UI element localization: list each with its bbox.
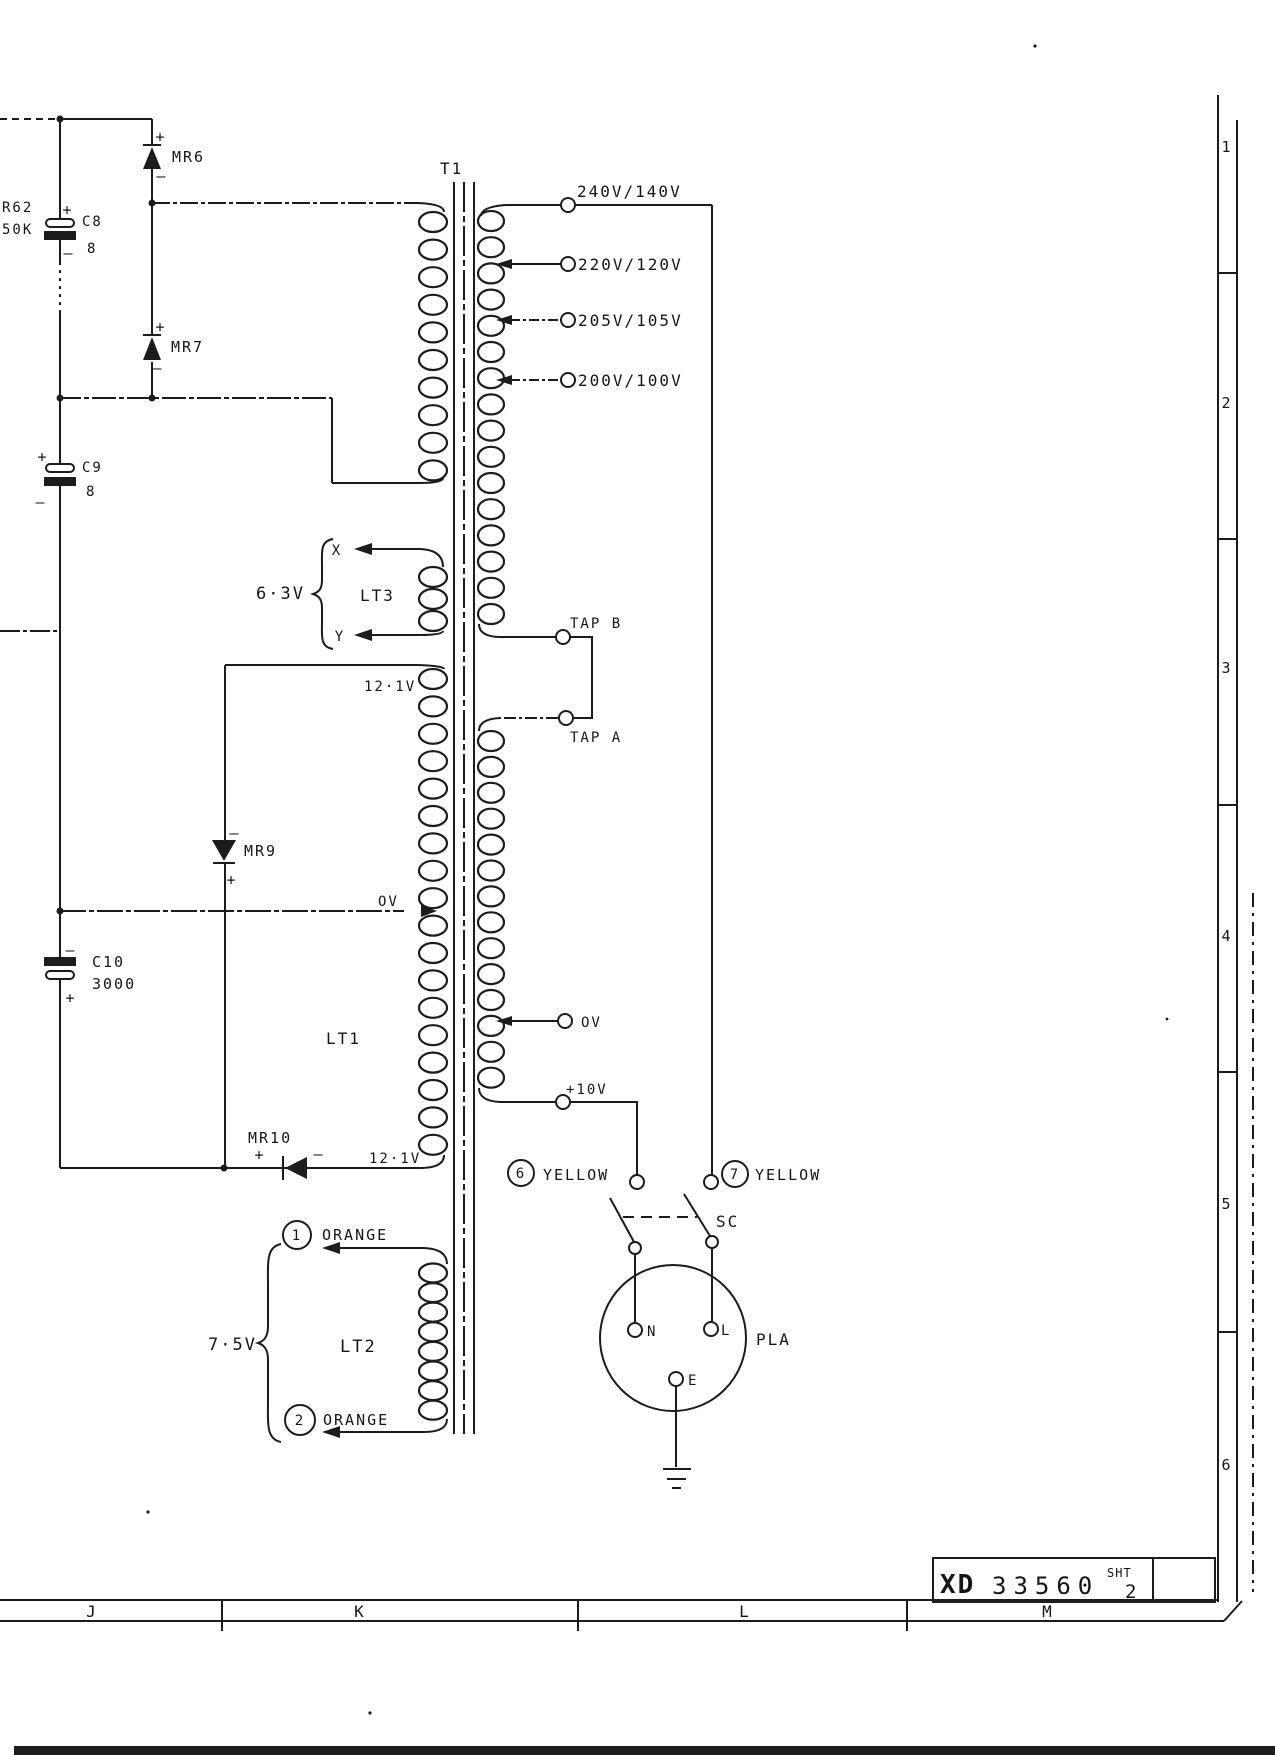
- orange-1-color: ORANGE: [322, 1226, 388, 1244]
- c10-value: 3000: [92, 975, 136, 993]
- orange-2-number: 2: [295, 1413, 305, 1429]
- row-number-4: 4: [1221, 927, 1232, 945]
- secondary-zero-label: OV: [581, 1015, 602, 1031]
- mr10-plus: +: [254, 1146, 263, 1164]
- c8-value: 8: [87, 241, 97, 257]
- column-letter-m: M: [1042, 1602, 1054, 1621]
- orange-1-number: 1: [292, 1228, 302, 1244]
- schematic-sheet: 1 2 3 4 5 6 J K L M XD 33560 SHT 2 T1: [0, 0, 1275, 1755]
- frame-grid-labels: 1 2 3 4 5 6 J K L M: [86, 138, 1232, 1621]
- scan-specks: [146, 44, 1168, 1714]
- lt2-terminals: [258, 1221, 424, 1442]
- orange-2-color: ORANGE: [323, 1411, 389, 1429]
- sheet-label: SHT: [1107, 1566, 1132, 1580]
- switch-sc: [610, 1194, 718, 1254]
- mr10-minus: –: [313, 1145, 323, 1163]
- transformer-windings: [419, 211, 504, 1420]
- drawing-prefix: XD: [940, 1570, 975, 1600]
- diode-mr6: [143, 145, 161, 169]
- lt1-top-voltage: 12·1V: [364, 679, 416, 695]
- column-letter-l: L: [739, 1602, 751, 1621]
- transformer-core: [454, 182, 474, 1434]
- switch-sc-label: SC: [716, 1212, 739, 1231]
- lt1-zero-label: OV: [378, 894, 399, 910]
- secondary-plus10-label: +10V: [566, 1082, 608, 1098]
- c10-minus: –: [65, 941, 75, 959]
- row-number-1: 1: [1221, 138, 1232, 156]
- column-letter-j: J: [86, 1602, 98, 1621]
- tap-b-a-wires: [498, 630, 592, 725]
- row-number-6: 6: [1221, 1456, 1232, 1474]
- c9-value: 8: [86, 484, 96, 500]
- row-number-3: 3: [1221, 659, 1232, 677]
- mr10-label: MR10: [248, 1129, 292, 1147]
- lt3-label: LT3: [360, 586, 395, 605]
- row-number-2: 2: [1221, 394, 1232, 412]
- title-block: XD 33560 SHT 2: [933, 1558, 1215, 1603]
- mr7-plus: +: [155, 318, 164, 336]
- sheet-number: 2: [1125, 1581, 1138, 1603]
- c9-plus: +: [37, 448, 46, 466]
- mr9-label: MR9: [244, 842, 277, 860]
- terminal-6-number: 6: [516, 1166, 526, 1182]
- lt3-voltage: 6·3V: [256, 584, 305, 604]
- c8-minus: –: [63, 244, 73, 262]
- mr7-minus: –: [152, 359, 162, 377]
- row-number-5: 5: [1221, 1195, 1232, 1213]
- c9-minus: –: [35, 493, 45, 511]
- pin-l-label: L: [721, 1323, 731, 1339]
- capacitor-c8: [44, 219, 76, 240]
- c8-label: C8: [82, 214, 103, 230]
- mr9-plus: +: [226, 871, 235, 889]
- tap-200v-label: 200V/100V: [578, 371, 683, 390]
- drawing-number: 33560: [992, 1572, 1099, 1600]
- pin-e-label: E: [688, 1373, 698, 1389]
- mr6-label: MR6: [172, 148, 205, 166]
- column-letter-k: K: [354, 1602, 366, 1621]
- c8-plus: +: [62, 201, 71, 219]
- tap-205v-label: 205V/105V: [578, 311, 683, 330]
- c9-label: C9: [82, 460, 103, 476]
- capacitor-c9: [44, 464, 76, 486]
- terminal-7-number: 7: [730, 1167, 740, 1183]
- capacitor-c10: [44, 957, 76, 979]
- lt3-x-terminal: X: [332, 543, 342, 559]
- earth-symbol: [663, 1469, 691, 1488]
- mr6-plus: +: [155, 128, 164, 146]
- lt1-bottom-voltage: 12·1V: [369, 1151, 421, 1167]
- plug-pla-label: PLA: [756, 1330, 791, 1349]
- tap-240v-label: 240V/140V: [577, 182, 682, 201]
- schematic-drawing: 1 2 3 4 5 6 J K L M XD 33560 SHT 2 T1: [0, 0, 1275, 1755]
- tap-b-label: TAP B: [570, 616, 622, 632]
- plug-pla: [600, 1248, 746, 1467]
- c10-label: C10: [92, 953, 125, 971]
- c10-plus: +: [65, 989, 74, 1007]
- terminal-7-color: YELLOW: [755, 1166, 821, 1184]
- diode-mr7: [143, 335, 161, 360]
- pin-n-label: N: [647, 1324, 657, 1340]
- mr6-minus: –: [156, 167, 166, 185]
- tap-a-label: TAP A: [570, 730, 622, 746]
- scan-edge-strip: [14, 1746, 1275, 1755]
- lt2-voltage: 7·5V: [208, 1335, 257, 1355]
- r62-label: R62: [2, 200, 33, 216]
- primary-tap-wires: [496, 198, 712, 1175]
- transformer-label: T1: [440, 159, 463, 178]
- wires-left: [0, 119, 420, 1168]
- lt1-label: LT1: [326, 1029, 361, 1048]
- diode-mr10: [283, 1156, 307, 1180]
- diode-mr9: [212, 840, 236, 863]
- lt2-label: LT2: [340, 1337, 377, 1357]
- tap-220v-label: 220V/120V: [578, 255, 683, 274]
- mr9-minus: –: [229, 824, 239, 842]
- junction-dots: [57, 116, 228, 1172]
- terminal-6-color: YELLOW: [543, 1166, 609, 1184]
- mr7-label: MR7: [171, 338, 204, 356]
- r62-value: 50K: [2, 222, 33, 238]
- lt3-y-terminal: Y: [335, 629, 345, 645]
